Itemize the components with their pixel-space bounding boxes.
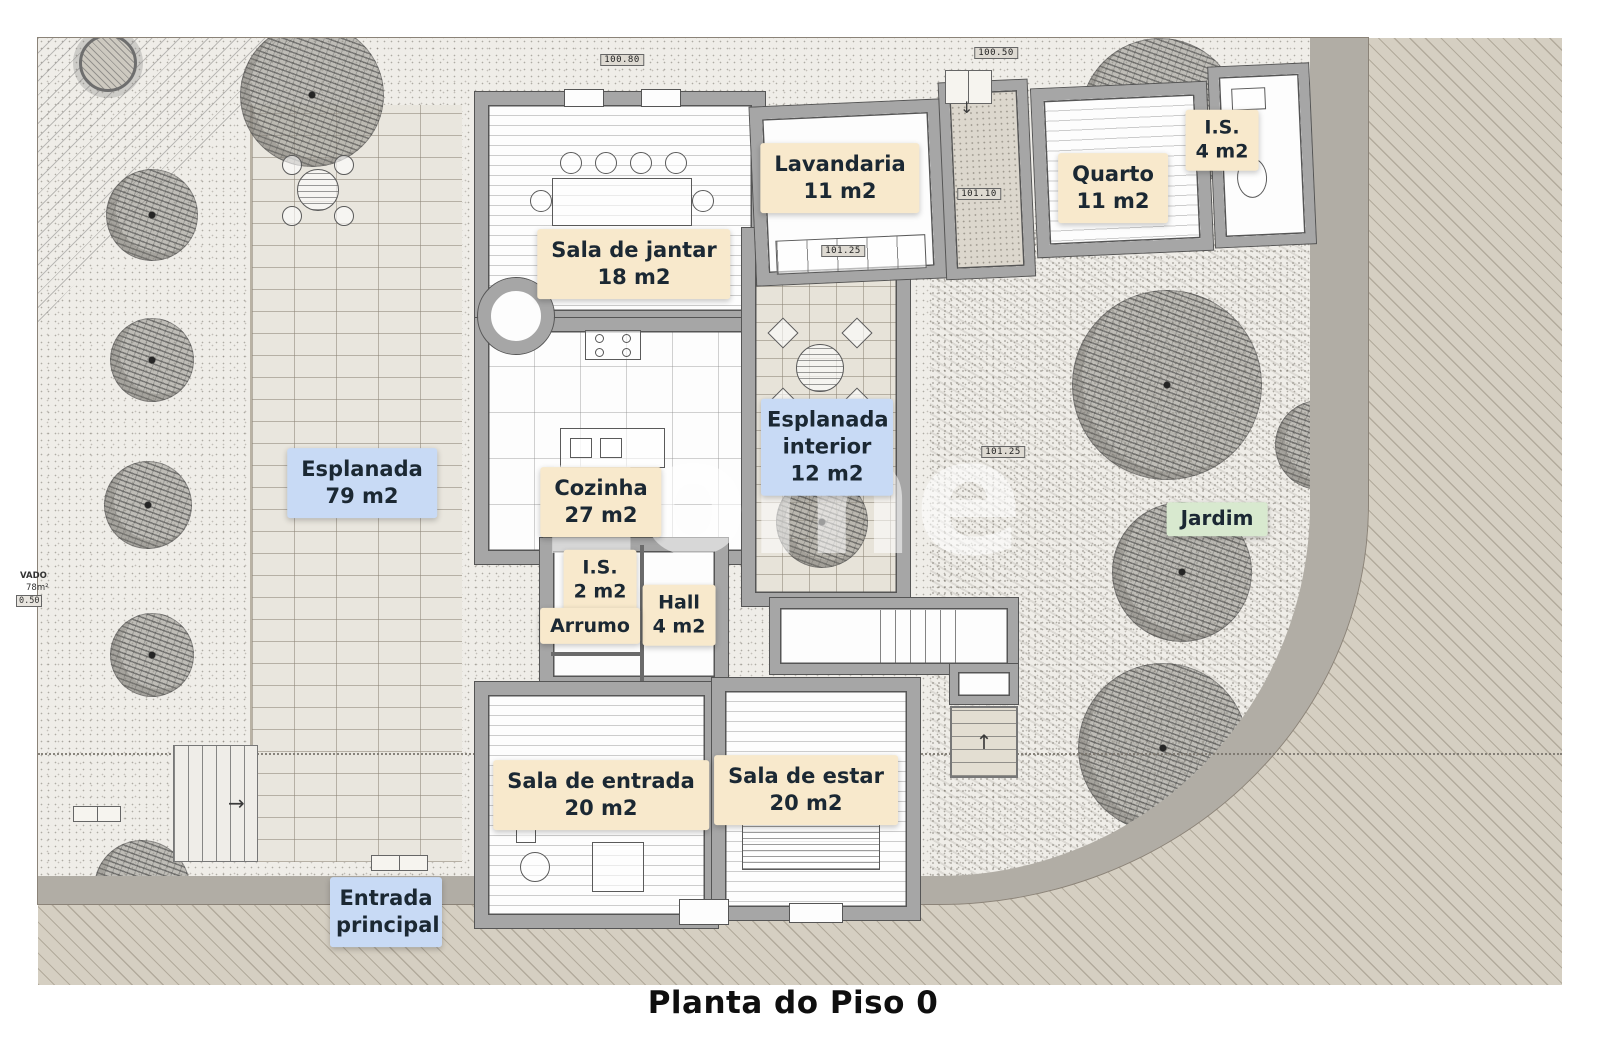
level-marker: 101.10	[957, 188, 1001, 200]
level-marker: 101.25	[981, 446, 1025, 458]
stair-treads	[880, 610, 956, 664]
floor-plan-page: ↑ ↓ →	[0, 0, 1600, 1062]
plan-title: Planta do Piso 0	[648, 985, 939, 1021]
garden-tree-icon	[1275, 400, 1365, 490]
level-marker: 100.50	[974, 47, 1018, 59]
chair-icon	[560, 152, 582, 174]
stair-right-arrow-icon: →	[228, 793, 245, 813]
terrace-table-icon	[297, 169, 339, 211]
tree-icon	[104, 461, 192, 549]
room-label-quarto: Quarto 11 m2	[1058, 153, 1168, 223]
dining-table-icon	[552, 178, 692, 226]
room-label-esplanada: Esplanada 79 m2	[287, 448, 437, 518]
chair-icon	[595, 152, 617, 174]
room-label-cozinha: Cozinha 27 m2	[540, 467, 661, 537]
tree-icon	[106, 169, 198, 261]
table-icon	[520, 852, 550, 882]
chair-icon	[334, 206, 354, 226]
step-box	[73, 806, 121, 822]
room-label-sala-entrada: Sala de entrada 20 m2	[493, 760, 709, 830]
edge-level-marker: 0.50	[16, 595, 42, 607]
chair-icon	[530, 190, 552, 212]
sink-icon	[600, 438, 622, 458]
window-gap	[642, 90, 680, 106]
edge-note: 78m²	[26, 583, 49, 593]
chair-icon	[665, 152, 687, 174]
room-label-esplanada-interior: Esplanada interior 12 m2	[761, 399, 893, 496]
chair-icon	[282, 155, 302, 175]
room-label-sala-jantar: Sala de jantar 18 m2	[537, 229, 730, 299]
room-label-is2: I.S. 2 m2	[564, 550, 637, 611]
garden-tree-icon	[1078, 663, 1248, 833]
room-label-is4: I.S. 4 m2	[1186, 110, 1259, 171]
chair-icon	[334, 155, 354, 175]
sofa-icon	[742, 822, 880, 870]
side-passage	[939, 80, 1035, 280]
chair-icon	[630, 152, 652, 174]
sink-icon	[570, 438, 592, 458]
patio-table-icon	[796, 344, 844, 392]
exterior-wide-stairs	[173, 745, 258, 862]
door-gap	[790, 904, 842, 922]
partition-wall	[551, 652, 643, 656]
tree-icon	[110, 318, 194, 402]
armchair-icon	[592, 842, 644, 892]
room-label-lavandaria: Lavandaria 11 m2	[760, 143, 919, 213]
edge-note: VADO	[20, 571, 47, 581]
chair-icon	[692, 190, 714, 212]
step-box	[371, 855, 428, 871]
window-gap	[565, 90, 603, 106]
stair-up-arrow-icon: ↑	[976, 732, 993, 752]
room-label-sala-estar: Sala de estar 20 m2	[714, 755, 898, 825]
level-marker: 101.25	[821, 245, 865, 257]
sink-icon	[1231, 87, 1266, 110]
stair-landing	[950, 664, 1018, 704]
room-label-arrumo: Arrumo	[540, 608, 640, 644]
chair-icon	[282, 206, 302, 226]
area-label-jardim: Jardim	[1167, 502, 1268, 536]
stove-icon	[585, 330, 641, 360]
exterior-stair: ↑	[950, 706, 1018, 778]
stair-down-arrow-icon: ↓	[960, 100, 973, 116]
garden-tree-icon	[1072, 290, 1262, 480]
area-label-entrada-principal: Entrada principal	[330, 877, 442, 947]
room-label-hall: Hall 4 m2	[643, 585, 716, 646]
level-marker: 100.80	[600, 54, 644, 66]
door-gap	[680, 900, 728, 924]
tree-icon	[110, 613, 194, 697]
